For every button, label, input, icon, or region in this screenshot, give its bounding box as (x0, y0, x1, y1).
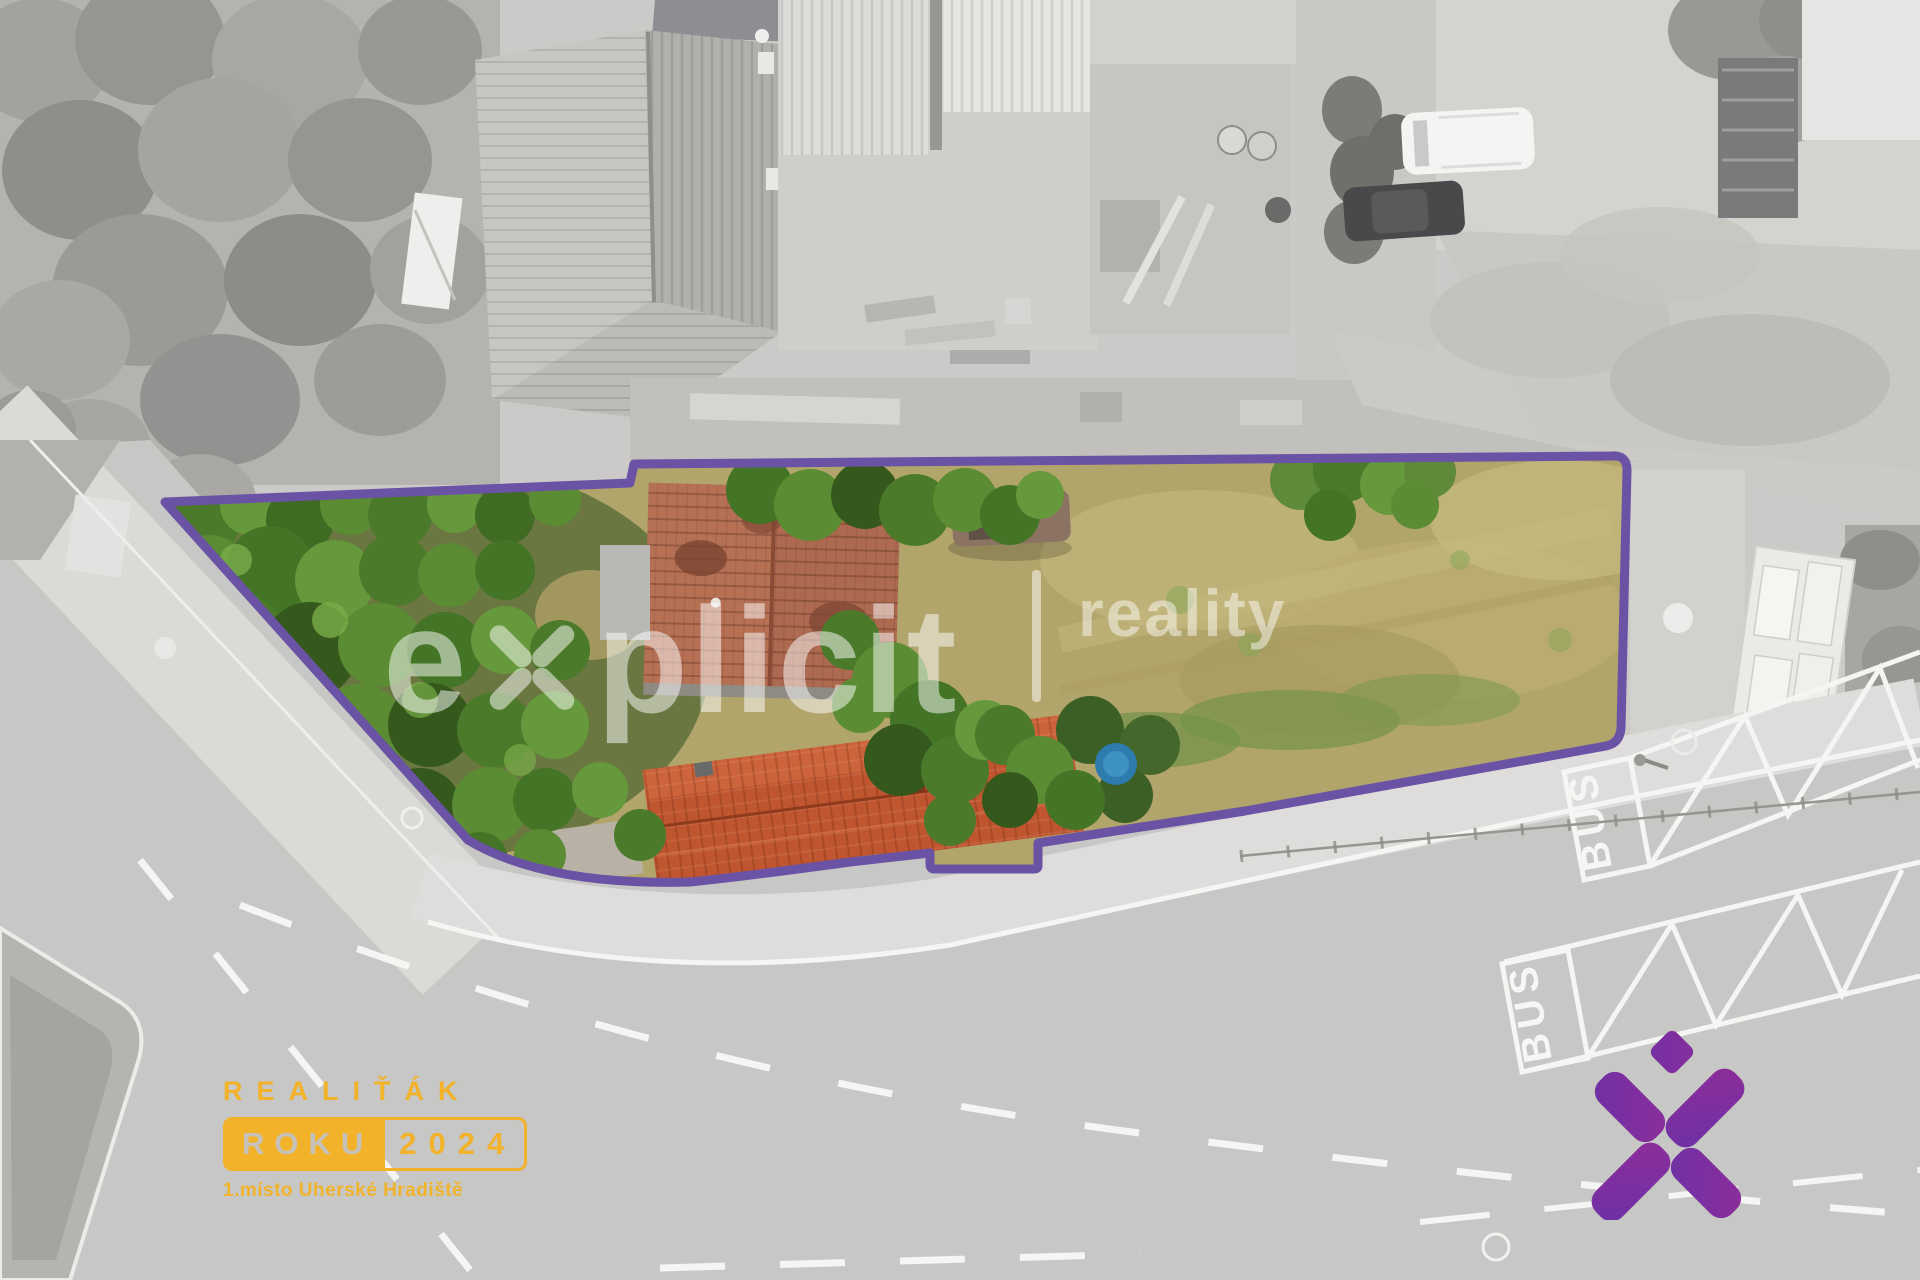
logo-x-arms (1588, 1062, 1751, 1220)
dark-car (1342, 180, 1465, 242)
aerial-photo: BUS BUS (0, 0, 1920, 1280)
manhole (1663, 603, 1693, 633)
award-badge-roku: ROKU (226, 1120, 385, 1168)
agency-logo (1588, 1030, 1758, 1220)
manhole (154, 637, 176, 659)
watermark-explicit: eplicit (383, 585, 958, 735)
logo-diamond (1648, 1030, 1696, 1076)
white-van (1400, 107, 1535, 176)
award-badge-title: REALIŤÁK (223, 1076, 527, 1107)
award-badge-subtitle: 1.místo Uherské Hradiště (223, 1180, 527, 1202)
watermark-explicit-pre: e (383, 576, 468, 744)
watermark-reality: reality (1078, 580, 1286, 646)
watermark-explicit-post: plicit (596, 576, 958, 744)
watermark-divider (1032, 570, 1041, 702)
award-badge-box: ROKU 2024 (223, 1117, 527, 1171)
award-badge: REALIŤÁK ROKU 2024 1.místo Uherské Hradi… (223, 1076, 527, 1202)
brand-x-icon (476, 606, 588, 718)
award-badge-year: 2024 (385, 1120, 524, 1168)
